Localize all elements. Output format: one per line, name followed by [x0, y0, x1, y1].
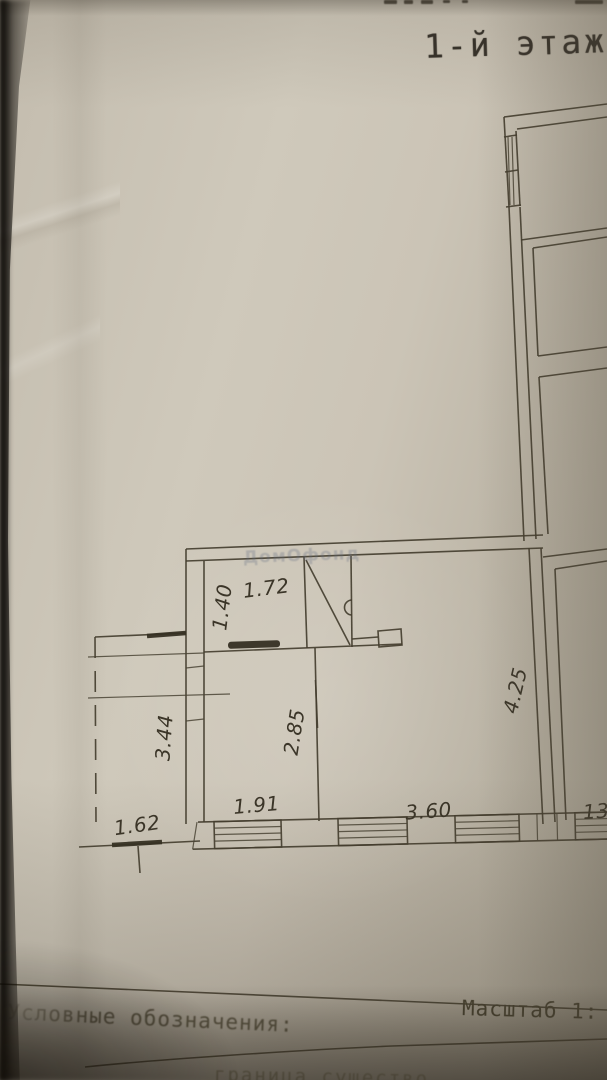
watermark: ДомОфонд [243, 544, 361, 568]
staircase [306, 556, 402, 647]
dim-porch-width: 1.62 [112, 810, 161, 840]
dim-left-room-depth: 2.85 [279, 707, 310, 757]
floor-title: 1-й этаж [423, 21, 607, 66]
door-leaf-symbol [228, 640, 280, 649]
dim-left-room-width: 1.91 [232, 791, 280, 819]
dim-closet-depth: 1.40 [207, 583, 236, 632]
dimension-extension-lines [88, 653, 230, 698]
dim-porch-depth: 3.44 [150, 713, 177, 761]
window-hatch [214, 820, 282, 849]
interior-partition-wall [315, 648, 319, 821]
window-hatch [338, 817, 408, 846]
document-photo: 1.72 1.40 2.85 1.91 3.60 4.25 3.44 1.62 … [0, 0, 607, 1080]
dim-main-room-depth: 4.25 [498, 665, 532, 716]
scale-label: Масштаб 1: [462, 996, 599, 1024]
porch-dashed-outline [79, 633, 200, 873]
dim-closet-width: 1.72 [242, 573, 291, 602]
floor-plan-drawing: 1.72 1.40 2.85 1.91 3.60 4.25 3.44 1.62 … [0, 0, 607, 1080]
building-upper-section [504, 104, 607, 541]
window-hatch [455, 814, 520, 843]
dim-right-room-partial: 13. [582, 798, 607, 824]
dim-main-room-width: 3.60 [404, 797, 452, 824]
